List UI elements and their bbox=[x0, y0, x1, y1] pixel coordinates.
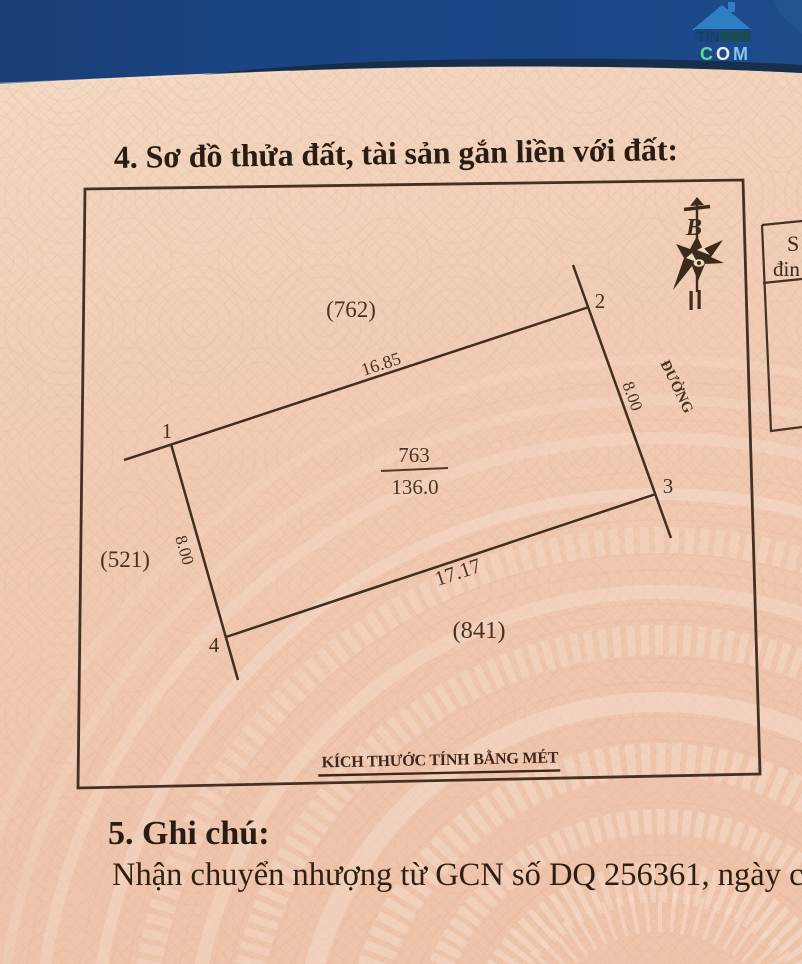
svg-text:(762): (762) bbox=[326, 297, 376, 322]
svg-text:(841): (841) bbox=[452, 617, 505, 644]
svg-text:B: B bbox=[685, 215, 702, 241]
svg-text:Nhận chuyển nhượng từ GCN số D: Nhận chuyển nhượng từ GCN số DQ 256361, … bbox=[112, 857, 802, 893]
svg-text:4: 4 bbox=[209, 633, 220, 657]
svg-text:TIN: TIN bbox=[697, 28, 720, 44]
svg-text:(521): (521) bbox=[100, 547, 150, 572]
svg-text:đin: đin bbox=[773, 257, 800, 281]
svg-text:3: 3 bbox=[663, 474, 674, 498]
svg-text:O: O bbox=[716, 44, 730, 64]
svg-text:136.0: 136.0 bbox=[391, 475, 438, 499]
svg-text:C: C bbox=[700, 44, 713, 64]
svg-text:763: 763 bbox=[398, 443, 430, 467]
svg-text:1: 1 bbox=[162, 419, 173, 443]
svg-text:M: M bbox=[733, 44, 748, 64]
svg-text:S: S bbox=[787, 231, 799, 256]
svg-text:5. Ghi chú:: 5. Ghi chú: bbox=[108, 815, 270, 852]
svg-text:2: 2 bbox=[595, 289, 606, 313]
svg-text:BDS: BDS bbox=[721, 28, 751, 44]
